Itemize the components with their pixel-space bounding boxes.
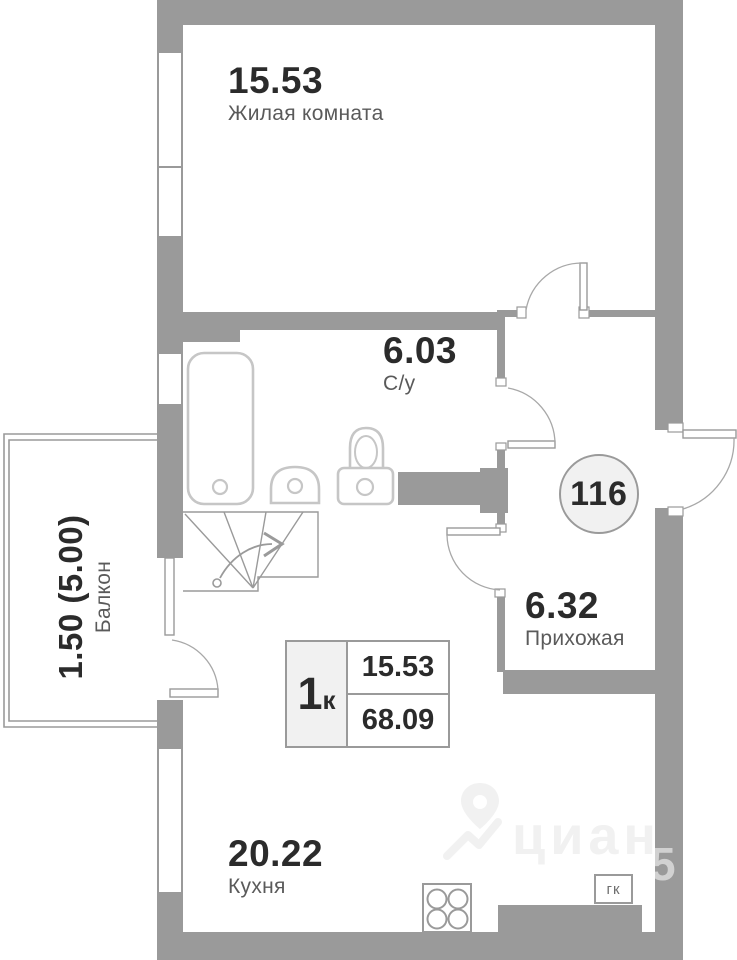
rooms-count-digit: 1 [297, 668, 322, 720]
sink-drain [288, 479, 302, 493]
bathroom-area: 6.03 [383, 330, 457, 372]
stairs [183, 512, 318, 591]
door-leaf-living [580, 263, 587, 310]
wall-right-lower [655, 508, 683, 960]
hallway-label: Прихожая [525, 627, 625, 651]
balcony-labels: 1.50 (5.00) Балкон [52, 514, 116, 679]
closet-box: гк [594, 874, 633, 904]
rooms-count-cell: 1 к [287, 642, 348, 746]
toilet-bowl-inner [355, 436, 377, 468]
wall-right-upper [655, 25, 683, 430]
wall-top [157, 0, 683, 25]
watermark-legs-icon [447, 822, 498, 856]
living-room-area: 15.53 [228, 60, 323, 102]
unit-number-badge: 116 [559, 454, 639, 534]
area-cells: 15.53 68.09 [348, 642, 448, 746]
door-leaf-hall [447, 528, 500, 535]
door-leaf-bathroom [508, 441, 555, 448]
balcony-label: Балкон [92, 514, 116, 679]
apartment-info-box: 1 к 15.53 68.09 [285, 640, 450, 748]
closet-label: гк [606, 881, 620, 898]
wall-bottom [157, 932, 683, 960]
balcony-area: 1.50 (5.00) [52, 514, 90, 679]
kitchen-area: 20.22 [228, 833, 323, 875]
wall-bathroom-right-3 [497, 595, 505, 672]
wall-bathroom-top-chunk [183, 312, 240, 342]
window-living-2 [158, 167, 182, 237]
watermark-digit: 5 [650, 838, 676, 890]
living-area-value: 15.53 [348, 642, 448, 695]
wall-left-5 [157, 893, 183, 960]
stairs-outline [183, 512, 318, 591]
door-arc-balcony [172, 640, 218, 690]
wall-left-4 [157, 700, 183, 748]
balcony-door-frame [165, 558, 174, 635]
watermark: циан 5 [447, 783, 676, 890]
door-leaf-balcony [170, 689, 218, 697]
door-leaf-entrance [683, 430, 736, 438]
wall-kitchen-chunk [498, 905, 642, 932]
door-arc-hall [447, 535, 500, 590]
window-living-1 [158, 52, 182, 167]
window-bathroom [158, 353, 182, 405]
wall-left-1 [157, 0, 183, 53]
stairs-arrow-start [213, 579, 221, 587]
wall-bathroom-bottom [398, 472, 505, 505]
wall-bathroom-right-1 [497, 317, 505, 385]
unit-number: 116 [570, 475, 628, 514]
watermark-brand: циан [512, 806, 661, 866]
door-arc-bathroom [508, 388, 555, 444]
wall-hall-bottom [503, 670, 655, 694]
bathroom-fixtures [188, 353, 393, 504]
wall-left-3 [157, 406, 183, 558]
window-kitchen [158, 748, 182, 893]
total-area-value: 68.09 [348, 695, 448, 746]
bathroom-label: С/у [383, 372, 415, 396]
floor-plan: циан 5 15.53 Жилая комната 6.03 С/у 6.32… [0, 0, 737, 960]
rooms-count-suffix: к [323, 685, 336, 716]
door-arc-living [526, 263, 583, 310]
bathtub-drain [213, 480, 227, 494]
toilet-button [357, 479, 373, 495]
kitchen-label: Кухня [228, 875, 286, 899]
living-room-label: Жилая комната [228, 102, 384, 126]
wall-hall-top-right [587, 310, 655, 317]
wall-left-2 [157, 238, 183, 352]
hallway-area: 6.32 [525, 585, 599, 627]
stove-icon [423, 884, 471, 932]
door-arc-entrance [683, 438, 734, 509]
